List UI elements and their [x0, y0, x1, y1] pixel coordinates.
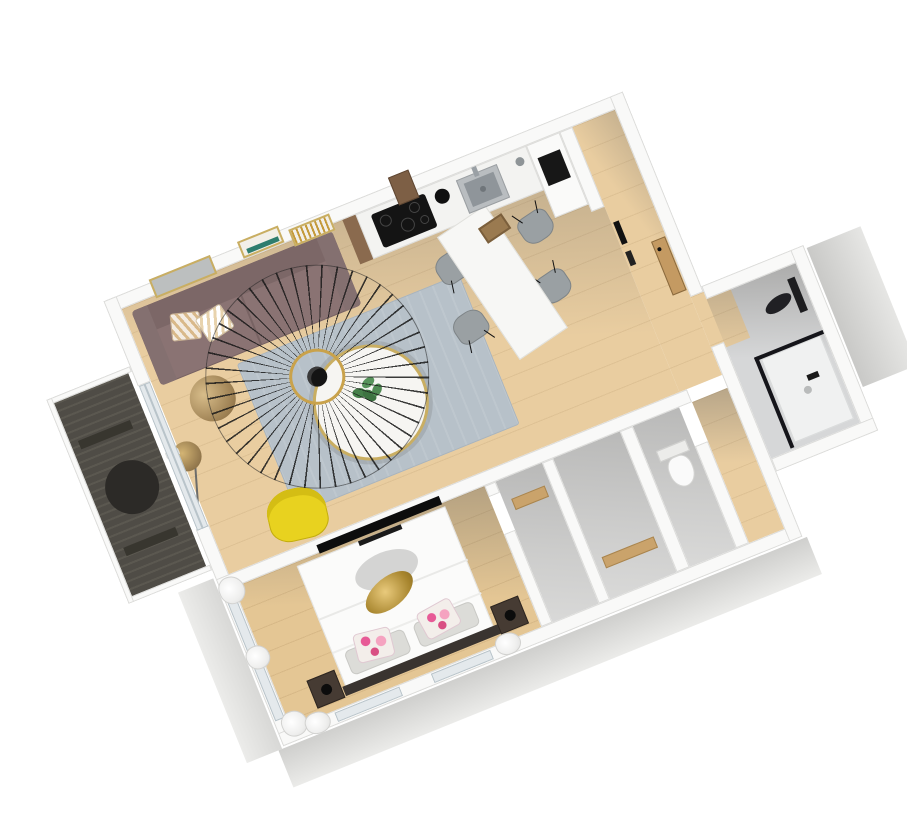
- sofa-throw-pillow-1[interactable]: [169, 311, 202, 342]
- burner: [407, 200, 421, 214]
- burner: [419, 214, 431, 226]
- burner: [399, 216, 417, 234]
- floorplan-canvas: [0, 0, 907, 827]
- bedside-lamp: [503, 608, 517, 622]
- bedside-lamp: [319, 682, 333, 696]
- apartment-3d-floorplan: [20, 5, 907, 827]
- burner: [378, 213, 394, 229]
